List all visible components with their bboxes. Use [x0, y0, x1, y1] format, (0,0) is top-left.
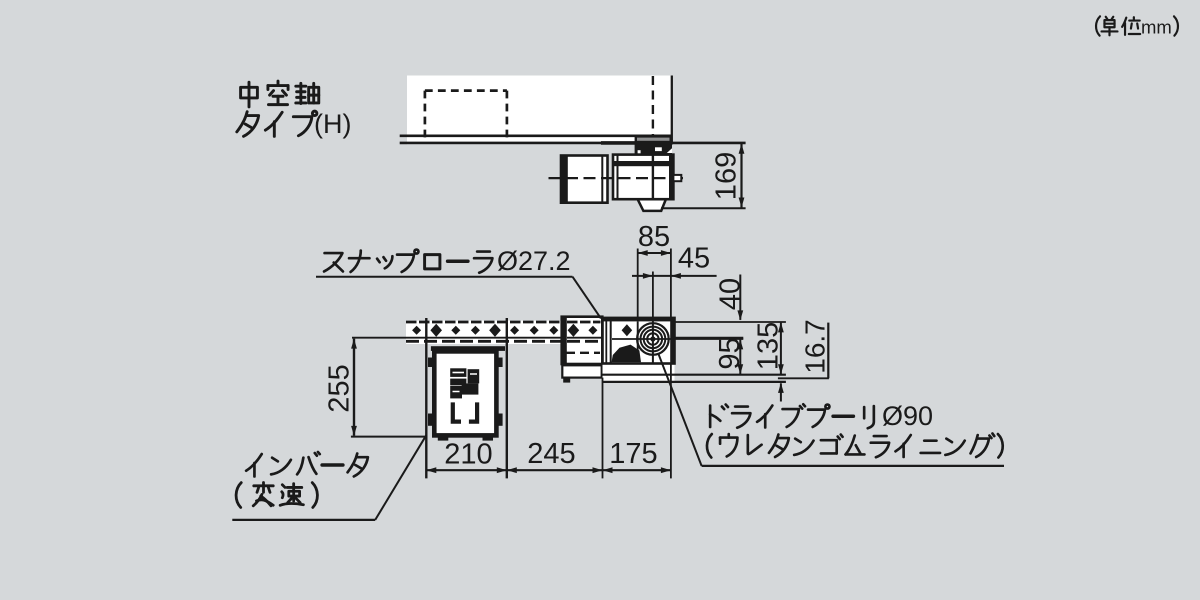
svg-text:(H): (H) — [314, 109, 351, 139]
svg-text:135: 135 — [753, 322, 785, 370]
svg-text:Ø90: Ø90 — [882, 401, 933, 431]
svg-text:45: 45 — [678, 243, 710, 275]
svg-text:Ø27.2: Ø27.2 — [497, 246, 571, 276]
svg-text:mm: mm — [1141, 17, 1172, 38]
svg-text:245: 245 — [527, 438, 575, 470]
svg-text:175: 175 — [609, 438, 657, 470]
svg-text:169: 169 — [711, 152, 743, 200]
svg-text:210: 210 — [444, 439, 492, 471]
svg-text:40: 40 — [715, 278, 747, 310]
svg-text:16.7: 16.7 — [800, 319, 831, 374]
svg-text:95: 95 — [714, 337, 746, 369]
svg-text:85: 85 — [638, 221, 670, 253]
svg-text:255: 255 — [324, 364, 356, 412]
